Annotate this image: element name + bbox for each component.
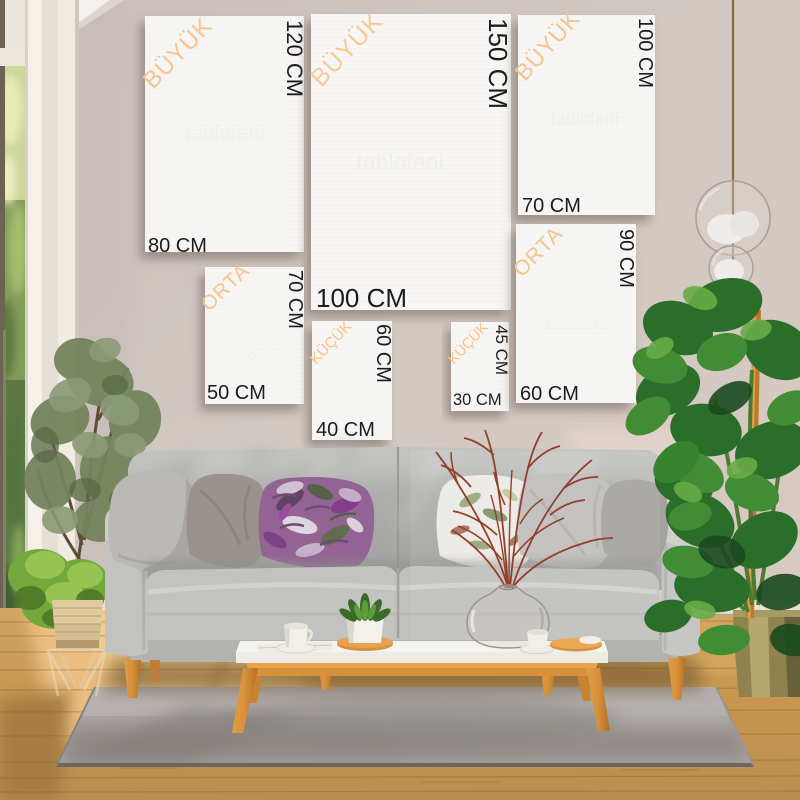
svg-text:150 CM: 150 CM [483,18,513,109]
svg-text:40 CM: 40 CM [316,419,375,441]
svg-text:70 CM: 70 CM [522,195,581,217]
svg-text:tablofeni: tablofeni [551,109,619,129]
svg-text:50 CM: 50 CM [207,382,266,404]
svg-text:tablofeni: tablofeni [546,317,607,334]
svg-text:70 CM: 70 CM [284,270,306,329]
svg-text:45 CM: 45 CM [492,325,511,375]
svg-text:tablofeni: tablofeni [357,149,444,175]
svg-text:tablofeni: tablofeni [185,122,264,145]
svg-text:120 CM: 120 CM [282,20,307,97]
svg-text:30 CM: 30 CM [453,391,502,409]
svg-text:80 CM: 80 CM [148,235,207,257]
svg-text:60 CM: 60 CM [520,383,579,405]
svg-text:60 CM: 60 CM [372,324,394,383]
svg-text:100 CM: 100 CM [316,283,407,313]
svg-text:90 CM: 90 CM [615,229,637,288]
svg-text:tablofeni: tablofeni [224,347,281,364]
svg-text:100 CM: 100 CM [634,18,656,88]
